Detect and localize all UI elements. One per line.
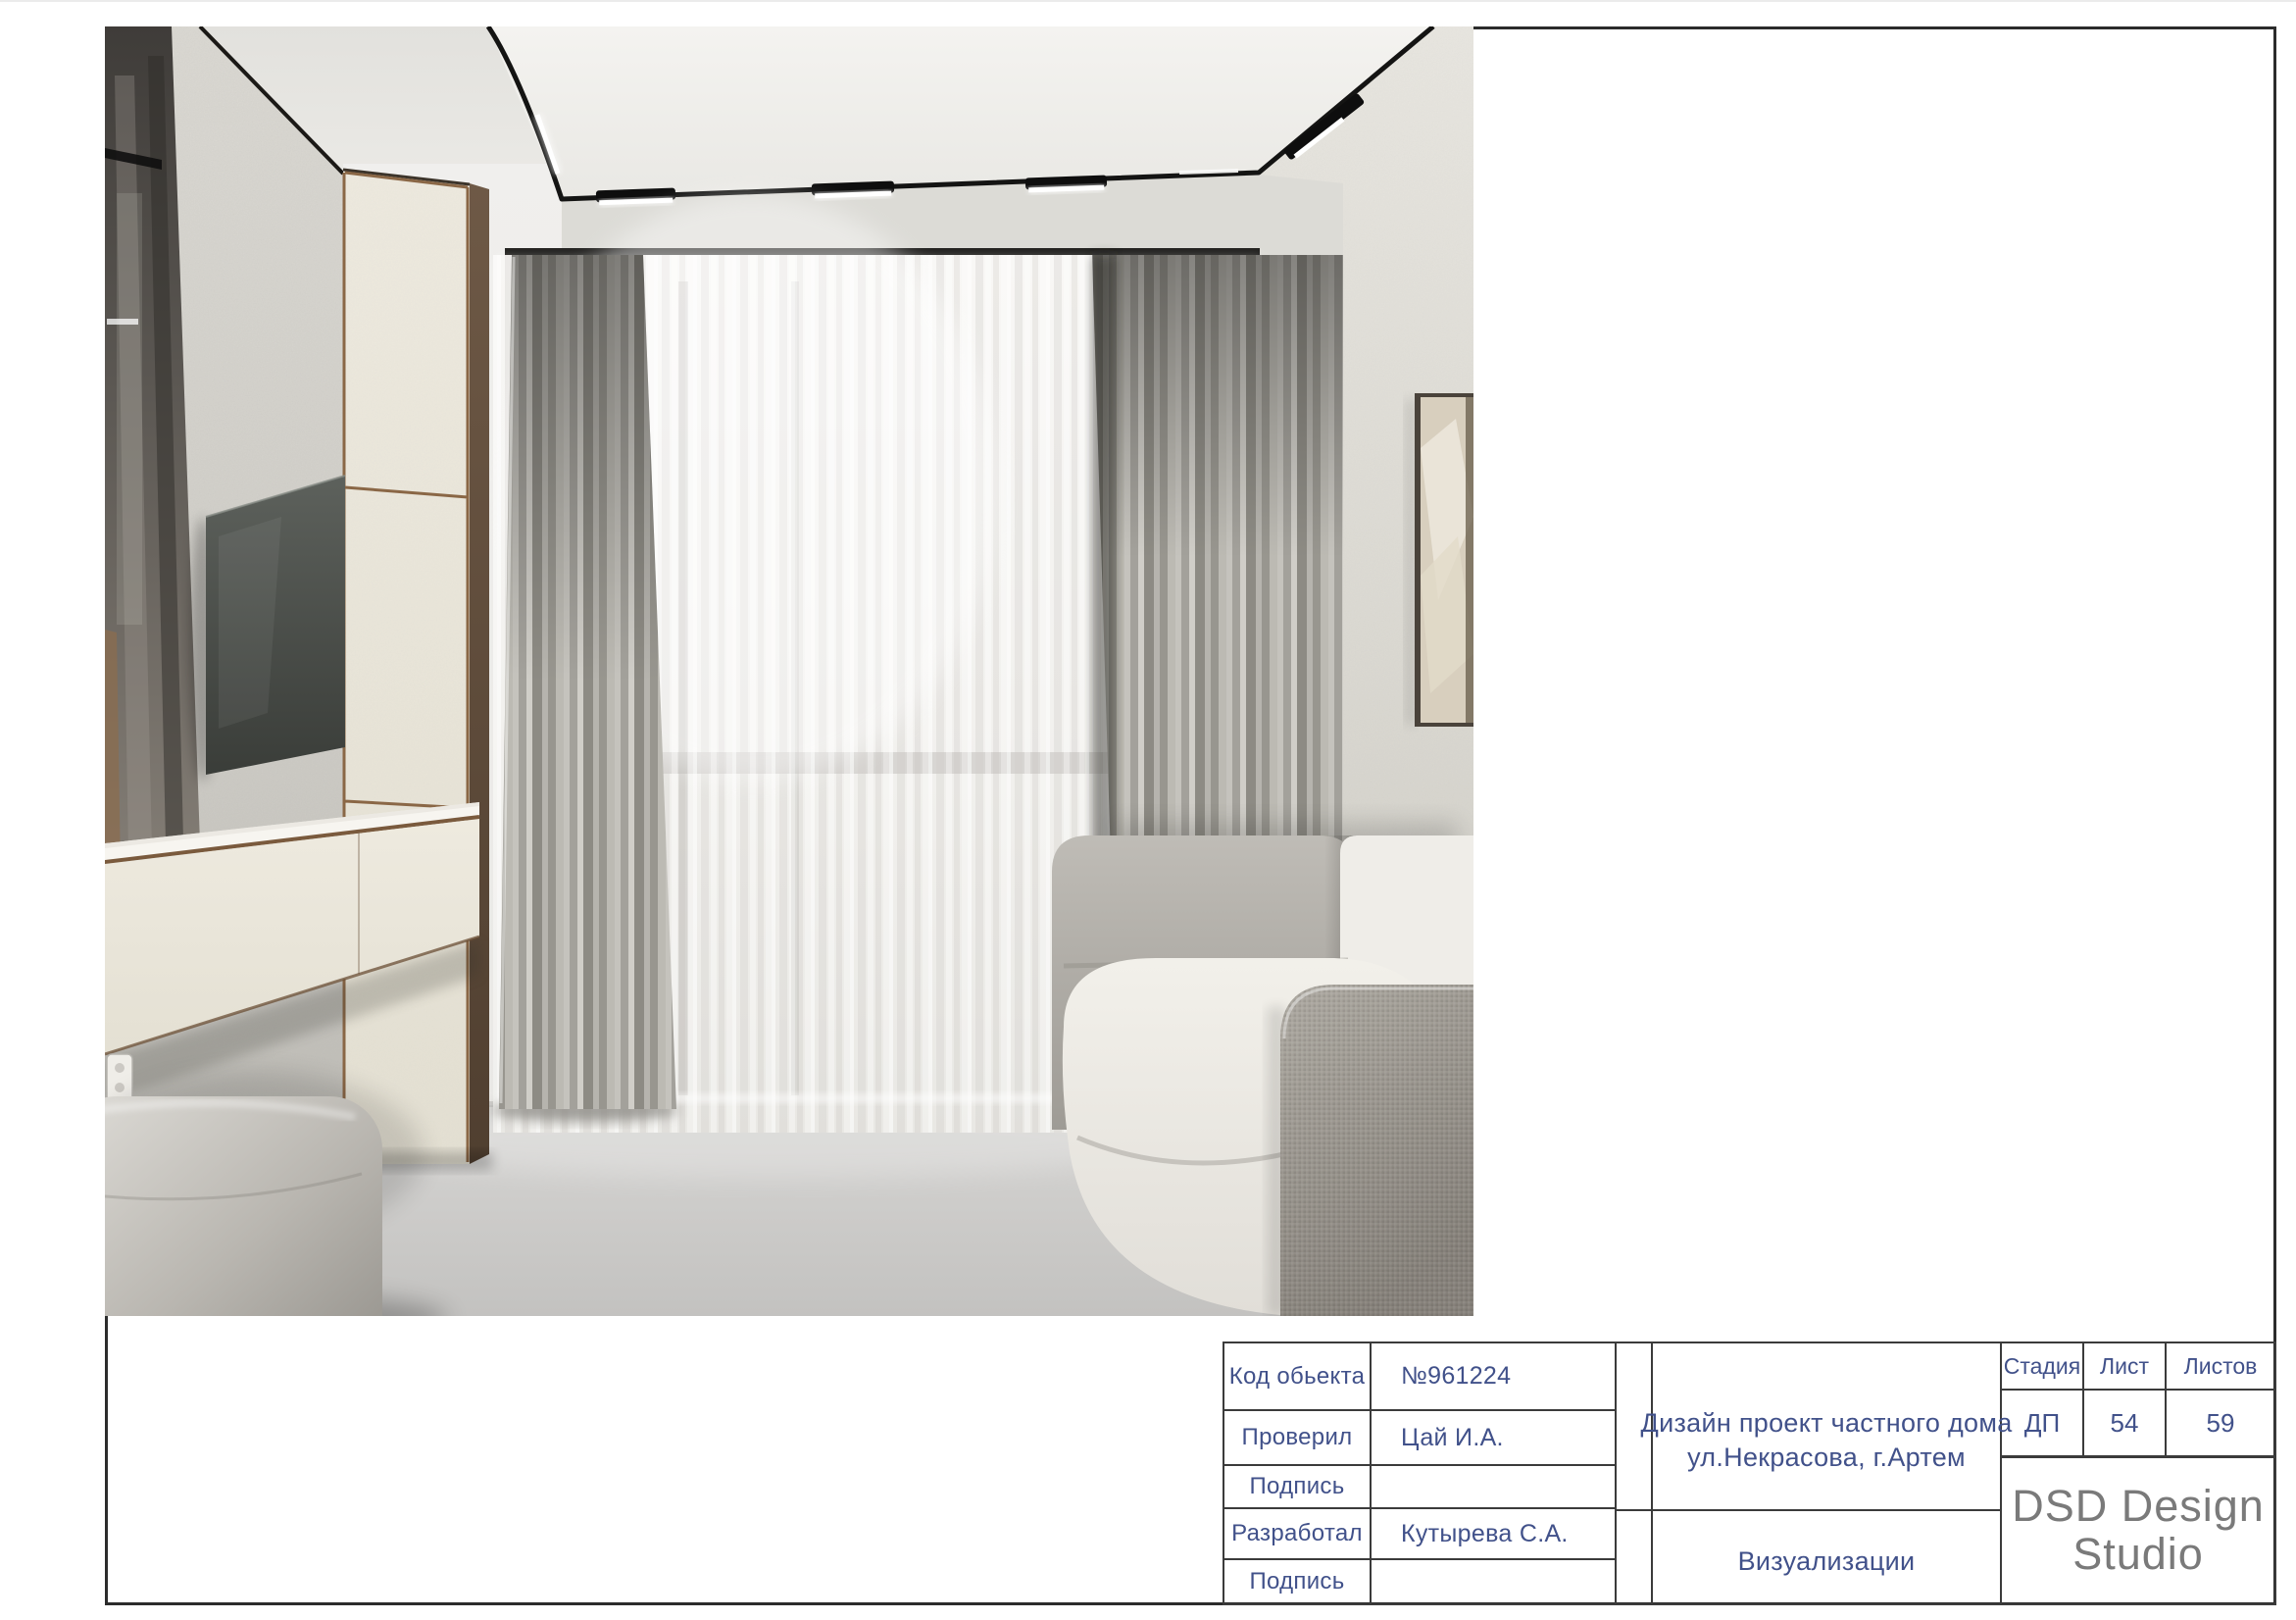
field-value-object-code: №961224 xyxy=(1372,1343,1617,1411)
title-block-divider-stub xyxy=(1617,1509,1651,1511)
stage-header: Стадия xyxy=(2002,1343,2084,1391)
project-title-line2: ул.Некрасова, г.Артем xyxy=(1687,1441,1966,1475)
interior-render-svg xyxy=(105,26,1473,1316)
wall-art xyxy=(1406,393,1473,727)
sheet-header: Лист xyxy=(2084,1343,2167,1391)
tv xyxy=(189,476,345,782)
field-value-checked-by: Цай И.А. xyxy=(1372,1411,1617,1466)
right-drape xyxy=(1092,255,1343,860)
wardrobe xyxy=(343,169,492,1170)
field-value-signature-1 xyxy=(1372,1466,1617,1509)
field-label-developed-by: Разработал xyxy=(1224,1509,1372,1560)
stage-value: ДП xyxy=(2002,1391,2084,1458)
field-value-developed-by: Кутырева С.А. xyxy=(1372,1509,1617,1560)
page-top-line xyxy=(0,0,2296,2)
interior-render-image xyxy=(105,26,1473,1316)
sheets-total-header: Листов xyxy=(2167,1343,2274,1391)
power-socket xyxy=(107,1054,132,1101)
section-title: Визуализации xyxy=(1651,1511,2002,1603)
studio-logo-line2: Studio xyxy=(2072,1531,2204,1579)
title-block: Код обьекта №961224 Проверил Цай И.А. По… xyxy=(1223,1342,2276,1605)
field-value-signature-2 xyxy=(1372,1560,1617,1603)
studio-logo-line1: DSD Design xyxy=(2012,1483,2265,1531)
sofa-set xyxy=(1052,823,1473,1316)
project-title: Дизайн проект частного дома ул.Некрасова… xyxy=(1651,1343,2002,1511)
field-label-object-code: Код обьекта xyxy=(1224,1343,1372,1411)
field-label-signature-2: Подпись xyxy=(1224,1560,1372,1603)
project-title-line1: Дизайн проект частного дома xyxy=(1641,1406,2013,1441)
field-label-signature-1: Подпись xyxy=(1224,1466,1372,1509)
stage-sheet-table: Стадия Лист Листов ДП 54 59 DSD Design S… xyxy=(2002,1343,2274,1603)
sheet-value: 54 xyxy=(2084,1391,2167,1458)
field-label-checked-by: Проверил xyxy=(1224,1411,1372,1466)
ceiling xyxy=(488,26,1433,260)
studio-logo: DSD Design Studio xyxy=(2002,1458,2274,1603)
sheets-total-value: 59 xyxy=(2167,1391,2274,1458)
